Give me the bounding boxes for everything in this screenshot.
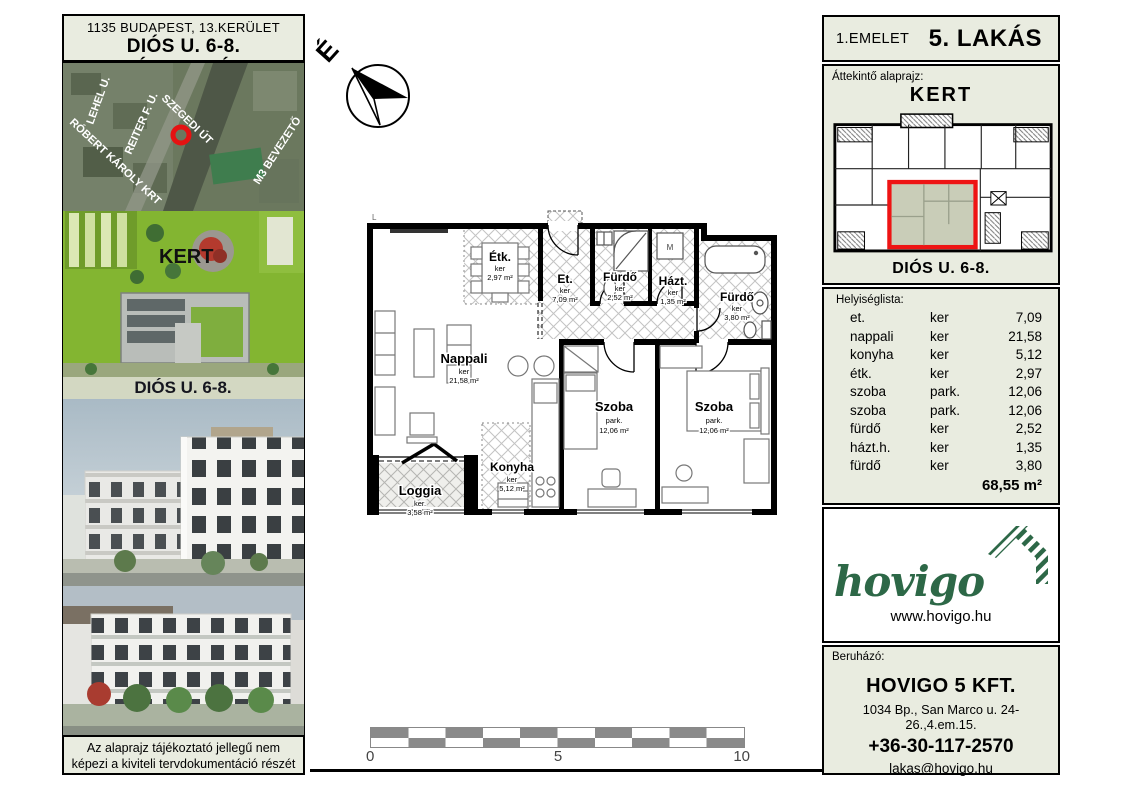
- website: www.hovigo.hu: [891, 608, 992, 625]
- svg-text:2,97 m²: 2,97 m²: [487, 273, 513, 282]
- developer-title: Beruházó:: [832, 651, 1050, 663]
- north-label: É: [312, 34, 345, 68]
- svg-text:12,06 m²: 12,06 m²: [599, 426, 629, 435]
- svg-text:1,35 m²: 1,35 m²: [660, 297, 686, 306]
- building-render-1: [63, 399, 304, 586]
- svg-text:12,06 m²: 12,06 m²: [699, 426, 729, 435]
- scale-0: 0: [366, 748, 374, 765]
- svg-text:Nappali: Nappali: [441, 351, 488, 366]
- room-row: fürdőker3,80: [836, 457, 1042, 476]
- room-list-panel: Helyiséglista: et.ker7,09 nappaliker21,5…: [822, 287, 1060, 505]
- room-row: konyhaker5,12: [836, 346, 1042, 365]
- disclaimer-line1: Az alaprajz tájékoztató jellegű nem: [64, 740, 303, 756]
- svg-text:park.: park.: [706, 416, 723, 425]
- overview-street-label: DIÓS U. 6-8.: [832, 260, 1050, 278]
- nappali-furniture: [375, 229, 471, 443]
- svg-text:3,58 m²: 3,58 m²: [407, 508, 433, 517]
- unit-header: 1.EMELET 5. LAKÁS: [822, 15, 1060, 62]
- room-row: fürdőker2,52: [836, 420, 1042, 439]
- developer-company: HOVIGO 5 KFT.: [832, 675, 1050, 698]
- developer-email: lakas@hovigo.hu: [832, 761, 1050, 776]
- garden-label: KERT: [159, 246, 213, 268]
- svg-text:Házt.: Házt.: [659, 274, 688, 288]
- svg-text:Fürdő: Fürdő: [603, 270, 637, 284]
- corner-label: L: [372, 213, 377, 222]
- svg-text:Loggia: Loggia: [399, 483, 442, 498]
- scale-labels: 0 5 10: [366, 748, 750, 766]
- overview-panel: Áttekintő alaprajz: KERT: [822, 64, 1060, 285]
- overview-kert-label: KERT: [832, 84, 1050, 107]
- hovigo-house-icon: [988, 526, 1048, 584]
- overview-title: Áttekintő alaprajz:: [832, 71, 1050, 83]
- svg-text:Konyha: Konyha: [490, 460, 534, 474]
- svg-text:Et.: Et.: [557, 272, 572, 286]
- highlighted-unit: [889, 182, 975, 247]
- svg-text:7,09 m²: 7,09 m²: [552, 295, 578, 304]
- unit-label: 5. LAKÁS: [929, 25, 1042, 53]
- aerial-map-image: LEHEL U. RÓBERT KÁROLY KRT REITER F. U. …: [63, 63, 304, 211]
- developer-panel: Beruházó: HOVIGO 5 KFT. 1034 Bp., San Ma…: [822, 645, 1060, 775]
- disclaimer: Az alaprajz tájékoztató jellegű nem képe…: [62, 735, 305, 775]
- room-row: étk.ker2,97: [836, 365, 1042, 384]
- total-area: 68,55 m²: [836, 476, 1042, 496]
- garden-street-label: DIÓS U. 6-8.: [134, 378, 231, 397]
- svg-text:21,58 m²: 21,58 m²: [449, 376, 479, 385]
- room-row: házt.h.ker1,35: [836, 439, 1042, 458]
- loggia-door-leaves: [402, 444, 457, 463]
- svg-text:ker: ker: [560, 286, 571, 295]
- disclaimer-line2: képezi a kiviteli tervdokumentáció részé…: [64, 756, 303, 772]
- svg-text:5,12 m²: 5,12 m²: [499, 484, 525, 493]
- svg-text:ker: ker: [668, 288, 679, 297]
- room-row: szobapark.12,06: [836, 383, 1042, 402]
- scale-5: 5: [554, 748, 562, 765]
- floor-label: 1.EMELET: [836, 31, 909, 47]
- svg-text:2,52 m²: 2,52 m²: [607, 293, 633, 302]
- svg-text:ker: ker: [495, 264, 506, 273]
- svg-text:park.: park.: [606, 416, 623, 425]
- garden-render-image: KERT DIÓS U. 6-8.: [63, 211, 304, 399]
- left-header: 1135 BUDAPEST, 13.KERÜLET DIÓS U. 6-8. T…: [62, 14, 305, 62]
- svg-text:Étk.: Étk.: [489, 249, 511, 264]
- left-image-stack: LEHEL U. RÓBERT KÁROLY KRT REITER F. U. …: [62, 62, 305, 735]
- room-row: nappaliker21,58: [836, 328, 1042, 347]
- svg-text:ker.: ker.: [414, 499, 426, 508]
- district-line: 1135 BUDAPEST, 13.KERÜLET: [64, 20, 303, 35]
- logo-panel: hovigo www.hovigo.hu: [822, 507, 1060, 643]
- svg-text:ker: ker: [459, 367, 470, 376]
- svg-text:3,80 m²: 3,80 m²: [724, 313, 750, 322]
- scale-bar: [370, 727, 745, 748]
- developer-address: 1034 Bp., San Marco u. 24-26.,4.em.15.: [832, 702, 1050, 732]
- room-list-title: Helyiséglista:: [836, 294, 1042, 306]
- svg-text:ker: ker: [615, 284, 626, 293]
- developer-phone: +36-30-117-2570: [832, 736, 1050, 758]
- room-row: et.ker7,09: [836, 309, 1042, 328]
- datasheet: 1135 BUDAPEST, 13.KERÜLET DIÓS U. 6-8. T…: [0, 0, 1123, 794]
- hovigo-logo-text: hovigo: [834, 562, 984, 602]
- red-tree: [87, 682, 111, 706]
- building-roof: [121, 293, 249, 363]
- north-arrow: É: [312, 28, 430, 142]
- svg-text:Fürdő: Fürdő: [720, 290, 754, 304]
- svg-text:ker: ker: [507, 475, 518, 484]
- room-row: szobapark.12,06: [836, 402, 1042, 421]
- floor-plan: L Étk. ker 2,97 m² Et. ker 7,09 m² Fürdő…: [352, 203, 794, 550]
- svg-text:Szoba: Szoba: [695, 399, 734, 414]
- scale-10: 10: [733, 748, 750, 765]
- svg-text:Szoba: Szoba: [595, 399, 634, 414]
- washer-label: M: [667, 243, 674, 252]
- svg-text:ker: ker: [732, 304, 743, 313]
- building-render-2: [63, 586, 304, 736]
- overview-plan: [832, 109, 1054, 257]
